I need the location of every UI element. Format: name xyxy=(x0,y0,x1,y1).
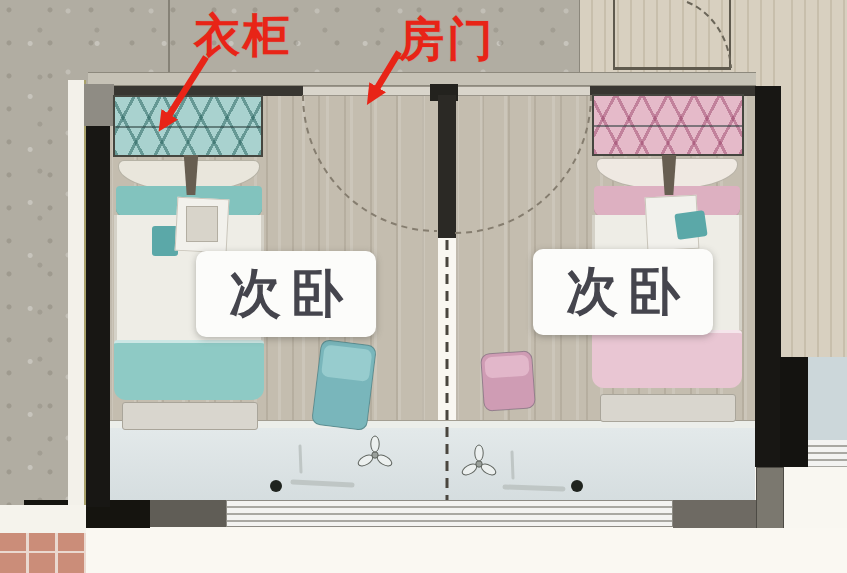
wardrobe-right xyxy=(592,94,744,156)
wardrobe-divider-line xyxy=(594,125,742,127)
wardrobe-annotation: 衣柜 xyxy=(194,12,292,58)
stool-left xyxy=(311,339,377,431)
floor-plan: 次卧 次卧 衣柜 房门 xyxy=(0,0,847,573)
window-frame-left xyxy=(150,500,228,527)
door-annotation: 房门 xyxy=(398,16,496,62)
left-wall-outer-strip xyxy=(68,80,86,507)
room-label-left: 次卧 xyxy=(196,251,376,337)
left-exterior-strip xyxy=(0,505,86,535)
partition-wall xyxy=(438,95,456,238)
exterior-bottom xyxy=(86,528,847,573)
terracotta-tiles xyxy=(0,533,86,573)
wood-floor-right xyxy=(780,0,847,360)
right-wall-block xyxy=(780,357,808,467)
room-label-text: 次卧 xyxy=(566,257,690,327)
window-frame-right xyxy=(673,500,757,528)
wardrobe-left xyxy=(113,95,263,157)
hallway-door-outline xyxy=(613,0,731,70)
right-side-window xyxy=(808,440,847,467)
right-side-balcony xyxy=(808,357,847,440)
door-opening-right xyxy=(458,86,590,96)
stool-cushion xyxy=(321,345,372,382)
balcony-window xyxy=(226,500,673,527)
wardrobe-divider-line xyxy=(115,126,261,128)
right-wall-lower-strip xyxy=(756,467,784,530)
balcony-floor xyxy=(110,428,755,502)
left-wall xyxy=(86,86,110,507)
bed-blanket xyxy=(592,330,742,388)
bed-bench xyxy=(600,394,736,422)
bed-tray-item xyxy=(674,210,707,240)
bed-tray-item xyxy=(186,206,218,242)
door-opening-left xyxy=(303,86,430,96)
room-label-right: 次卧 xyxy=(533,249,713,335)
room-label-text: 次卧 xyxy=(229,259,353,329)
stool-right xyxy=(480,350,536,411)
stool-cushion xyxy=(484,354,529,378)
left-wall-column xyxy=(84,84,114,126)
bed-blanket xyxy=(114,340,264,400)
right-wall xyxy=(755,86,781,467)
exterior-wall-band xyxy=(88,72,756,86)
bed-bench xyxy=(122,402,258,430)
